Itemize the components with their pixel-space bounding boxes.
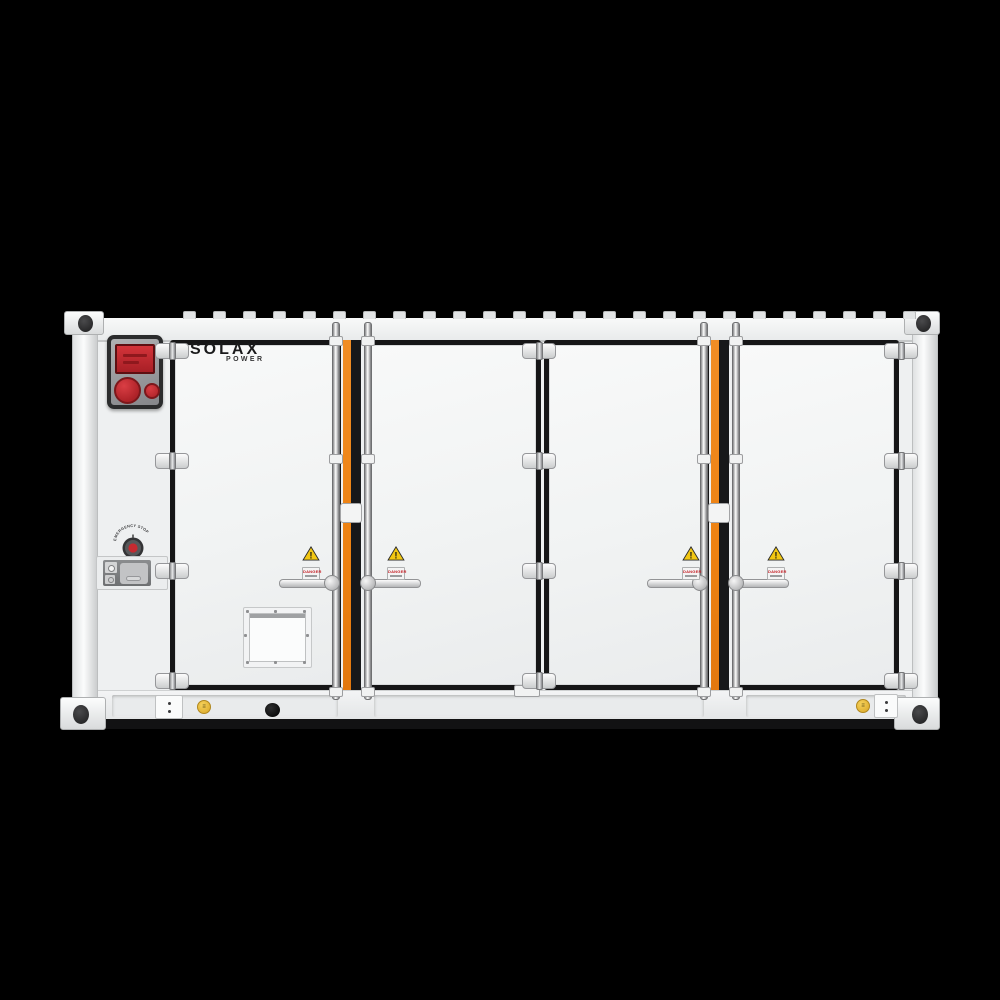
hinge-pin (169, 672, 176, 690)
warning-label-door-1: ! DANGER (302, 546, 320, 580)
handle-hub (324, 575, 340, 591)
panel-screw (274, 610, 277, 613)
door-3 (544, 340, 709, 690)
warning-label-door-4: ! DANGER (767, 546, 785, 580)
roof-tab (753, 311, 766, 319)
roof-tab (543, 311, 556, 319)
socket-round (105, 562, 117, 573)
roof-tab (903, 311, 916, 319)
lock-rod-door-1 (332, 322, 340, 700)
door-4 (732, 340, 899, 690)
roof-tab (303, 311, 316, 319)
roof-tab (633, 311, 646, 319)
alarm-button-small (144, 383, 160, 399)
danger-sticker: DANGER (767, 567, 785, 580)
corner-casting-top-left (64, 311, 104, 335)
hinge-pin (898, 342, 905, 360)
svg-text:!: ! (310, 550, 313, 560)
drain-hole (265, 703, 280, 717)
service-outlet-right (874, 694, 898, 718)
hinge-pin (169, 562, 176, 580)
lock-rod-door-3 (700, 322, 708, 700)
roof-tab (663, 311, 676, 319)
container-underside-shadow (104, 719, 908, 729)
hinge-pin (169, 452, 176, 470)
roof-tab (813, 311, 826, 319)
door-hinge (522, 673, 556, 689)
danger-text: DANGER (303, 569, 322, 574)
door-hinge (884, 453, 918, 469)
danger-text: DANGER (683, 569, 702, 574)
service-outlet-left (155, 695, 183, 719)
casting-hole (912, 705, 928, 724)
hinge-pin (898, 452, 905, 470)
danger-sticker: DANGER (302, 567, 320, 580)
corner-post-right (912, 320, 938, 710)
rod-guide-clip (361, 454, 375, 464)
access-panel-top-strip (250, 614, 305, 618)
access-panel (243, 607, 312, 668)
panel-screw (274, 661, 277, 664)
alarm-button-large (114, 377, 141, 404)
warning-triangle-icon: ! (767, 546, 785, 561)
warning-label-door-2: ! DANGER (387, 546, 405, 580)
corner-post-left (72, 320, 98, 710)
lock-rod-door-4 (732, 322, 740, 700)
roof-tab (603, 311, 616, 319)
door-hinge (155, 563, 189, 579)
danger-sticker: DANGER (682, 567, 700, 580)
roof-tab (483, 311, 496, 319)
hinge-pin (898, 672, 905, 690)
bottom-rail-recess-center (374, 695, 704, 717)
estop-index-mark (132, 535, 133, 538)
door-hinge (884, 673, 918, 689)
roof-tab (723, 311, 736, 319)
panel-screw (246, 661, 249, 664)
roof-tab (783, 311, 796, 319)
roof-tab (513, 311, 526, 319)
rod-guide-clip (697, 687, 711, 697)
roof-tab (363, 311, 376, 319)
casting-hole (73, 705, 89, 724)
roof-tab (873, 311, 886, 319)
latch-keeper (708, 503, 730, 523)
warning-triangle-icon: ! (387, 546, 405, 561)
roof-tab (333, 311, 346, 319)
door-hinge (522, 453, 556, 469)
svg-text:!: ! (775, 550, 778, 560)
panel-screw (306, 634, 309, 637)
product-image-stage: ! DANGER ! DANGER ! DANGER ! DANGER SOLA… (0, 0, 1000, 1000)
hinge-pin (536, 342, 543, 360)
warning-label-door-3: ! DANGER (682, 546, 700, 580)
grounding-point-icon: ≡ (197, 700, 211, 714)
corner-casting-bottom-left (60, 697, 106, 730)
warning-triangle-icon: ! (682, 546, 700, 561)
danger-sticker: DANGER (387, 567, 405, 580)
rod-guide-clip (329, 336, 343, 346)
danger-text: DANGER (388, 569, 407, 574)
svg-text:!: ! (395, 550, 398, 560)
brand-logo-subtext: POWER (226, 356, 276, 363)
casting-hole (916, 315, 931, 332)
rod-guide-clip (361, 687, 375, 697)
hinge-pin (898, 562, 905, 580)
rod-guide-clip (697, 336, 711, 346)
center-post-1 (341, 340, 364, 690)
casting-hole (78, 315, 93, 332)
door-hinge (155, 673, 189, 689)
bottom-rail-recess-left (112, 695, 338, 717)
warning-triangle-icon: ! (302, 546, 320, 561)
brand-logo: SOLAX POWER (190, 341, 276, 363)
access-panel-face (249, 613, 306, 662)
rod-guide-clip (329, 454, 343, 464)
roof-tab (843, 311, 856, 319)
door-hinge (884, 563, 918, 579)
container-top-rail (98, 318, 914, 342)
door-hinge (522, 563, 556, 579)
hinge-pin (536, 672, 543, 690)
alarm-display-screen (115, 344, 155, 374)
screen-segment (123, 361, 139, 364)
emergency-stop-button (128, 543, 137, 552)
door-hinge (884, 343, 918, 359)
center-post-2 (709, 340, 732, 690)
roof-tab (453, 311, 466, 319)
socket-recess (103, 560, 151, 586)
hinge-pin (536, 562, 543, 580)
rod-guide-clip (329, 687, 343, 697)
handle-hub (728, 575, 744, 591)
corner-casting-bottom-right (894, 697, 940, 730)
hinge-pin (169, 342, 176, 360)
latch-keeper (340, 503, 362, 523)
rod-guide-clip (361, 336, 375, 346)
door-hinge (155, 343, 189, 359)
hinge-pin (536, 452, 543, 470)
handle-hub (360, 575, 376, 591)
panel-screw (303, 610, 306, 613)
roof-tab (243, 311, 256, 319)
door-hinge (155, 453, 189, 469)
rod-guide-clip (729, 454, 743, 464)
roof-tab (423, 311, 436, 319)
socket-cover (120, 563, 148, 584)
danger-text: DANGER (768, 569, 787, 574)
door-2 (364, 340, 541, 690)
svg-text:!: ! (690, 550, 693, 560)
door-hinge (522, 343, 556, 359)
panel-screw (246, 610, 249, 613)
roof-tab (693, 311, 706, 319)
socket-small (105, 575, 115, 584)
roof-tab (273, 311, 286, 319)
roof-tab (183, 311, 196, 319)
rod-guide-clip (729, 687, 743, 697)
panel-screw (303, 661, 306, 664)
rod-guide-clip (697, 454, 711, 464)
roof-tab (213, 311, 226, 319)
roof-tab (573, 311, 586, 319)
roof-tab (393, 311, 406, 319)
screen-segment (123, 354, 147, 357)
grounding-point-icon: ≡ (856, 699, 870, 713)
socket-slot (126, 576, 141, 581)
lock-rod-door-2 (364, 322, 372, 700)
rod-guide-clip (729, 336, 743, 346)
panel-screw (244, 634, 247, 637)
